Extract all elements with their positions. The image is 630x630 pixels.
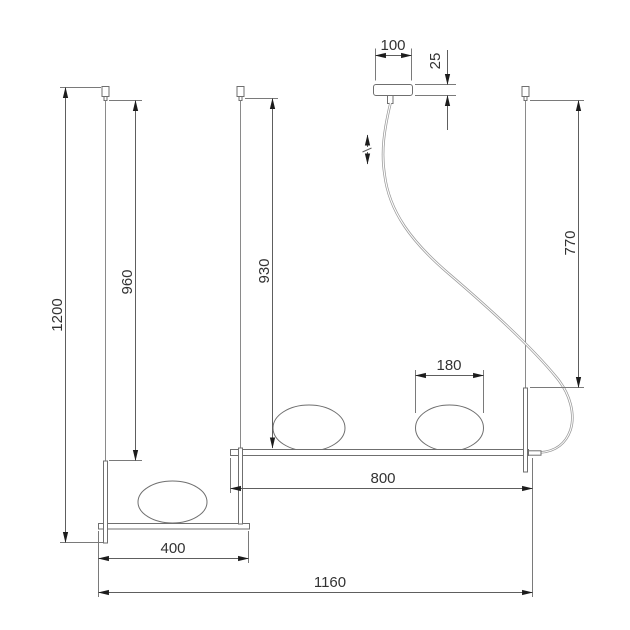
dim-right-cable-drop: 770	[530, 101, 584, 388]
dim-label-lower-bar: 400	[160, 540, 185, 557]
height-adjust-symbol	[363, 135, 372, 164]
canopy-body	[374, 85, 413, 96]
right-connector	[522, 87, 529, 101]
lower-bar	[99, 524, 250, 530]
dim-lower-bar: 400	[99, 531, 249, 597]
adjust-tick	[363, 148, 372, 152]
upper-right-shade	[416, 405, 484, 451]
dim-label-canopy-width: 100	[380, 37, 405, 54]
dim-center-cable-drop: 930	[245, 99, 278, 449]
dim-overall-width: 1160	[99, 574, 533, 593]
lamp-dimension-drawing: 100 25 1200 960 930 770 18	[0, 0, 630, 630]
drawing-canvas: 100 25 1200 960 930 770 18	[0, 0, 630, 630]
upper-left-shade	[273, 405, 345, 451]
dim-canopy-width: 100	[376, 37, 412, 81]
left-rod	[104, 461, 108, 543]
lower-shade	[138, 481, 207, 523]
dim-label-center-cable-drop: 930	[256, 258, 273, 283]
dim-overall-height: 1200	[49, 88, 103, 543]
dim-label-upper-bar: 800	[370, 470, 395, 487]
ceiling-connectors	[102, 87, 529, 101]
power-cord-core	[383, 103, 572, 453]
center-rod	[239, 448, 243, 524]
dim-label-left-cable-drop: 960	[119, 269, 136, 294]
dim-left-cable-drop: 960	[109, 101, 142, 461]
right-rod	[524, 388, 528, 472]
canopy-stem	[388, 96, 394, 104]
dim-canopy-height: 25	[415, 50, 456, 130]
dim-label-shade-width: 180	[436, 357, 461, 374]
dim-label-right-cable-drop: 770	[562, 230, 579, 255]
ceiling-canopy	[374, 85, 413, 104]
dim-label-canopy-height: 25	[427, 53, 444, 70]
dim-label-overall-width: 1160	[314, 574, 346, 591]
dim-label-overall-height: 1200	[49, 298, 66, 331]
left-connector	[102, 87, 109, 101]
power-cord	[383, 103, 572, 453]
center-connector	[237, 87, 244, 101]
glass-shades	[138, 405, 484, 523]
upper-bar	[231, 450, 529, 456]
power-cord-outline	[383, 103, 572, 453]
dim-upper-bar: 800	[231, 458, 533, 597]
upper-bar-end-cap	[529, 451, 542, 455]
